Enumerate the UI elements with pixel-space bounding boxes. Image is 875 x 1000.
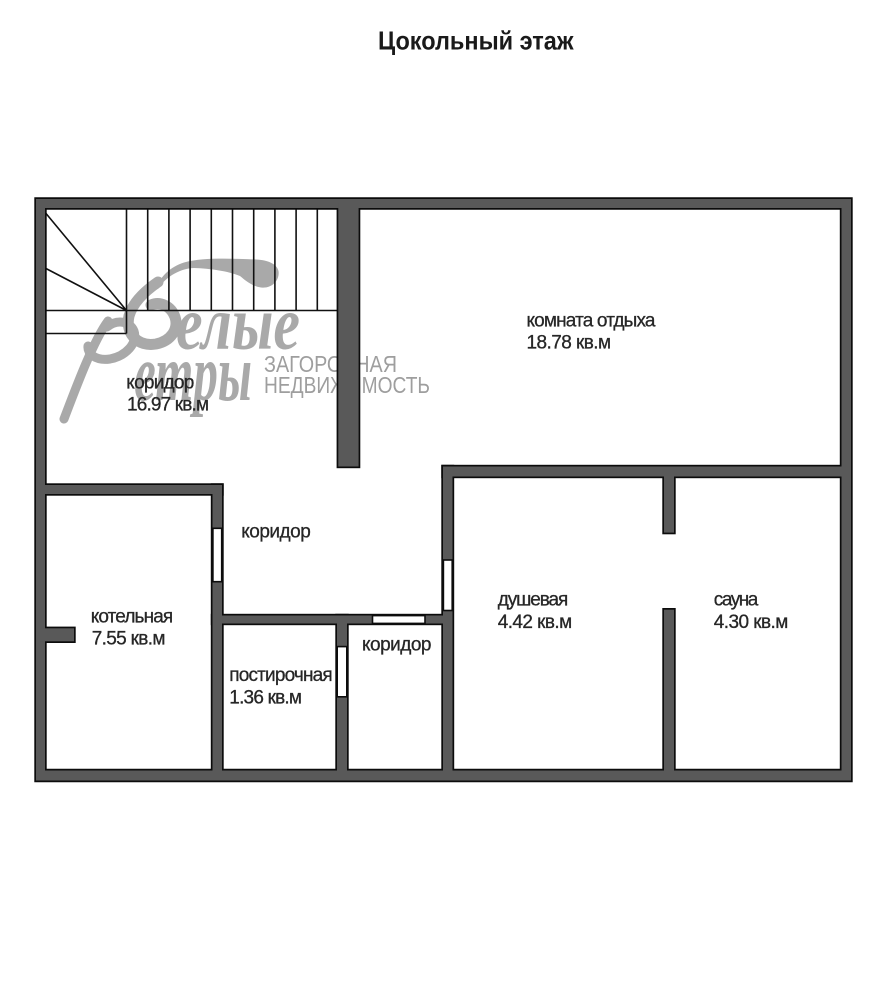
svg-text:коридор: коридор — [362, 634, 432, 655]
svg-text:16.97 кв.м: 16.97 кв.м — [127, 394, 209, 415]
svg-text:сауна: сауна — [714, 590, 759, 611]
svg-text:18.78 кв.м: 18.78 кв.м — [527, 333, 612, 354]
svg-text:котельная: котельная — [91, 606, 174, 627]
svg-text:7.55 кв.м: 7.55 кв.м — [92, 629, 166, 650]
svg-text:комната отдыха: комната отдыха — [527, 310, 656, 331]
svg-text:4.42 кв.м: 4.42 кв.м — [498, 612, 573, 633]
svg-text:1.36 кв.м: 1.36 кв.м — [229, 687, 302, 708]
svg-text:коридор: коридор — [126, 373, 194, 394]
svg-text:постирочная: постирочная — [229, 665, 332, 686]
svg-text:4.30 кв.м: 4.30 кв.м — [714, 612, 789, 633]
svg-text:душевая: душевая — [498, 590, 569, 611]
svg-text:коридор: коридор — [241, 522, 311, 543]
svg-text:Цокольный этаж: Цокольный этаж — [378, 26, 574, 56]
